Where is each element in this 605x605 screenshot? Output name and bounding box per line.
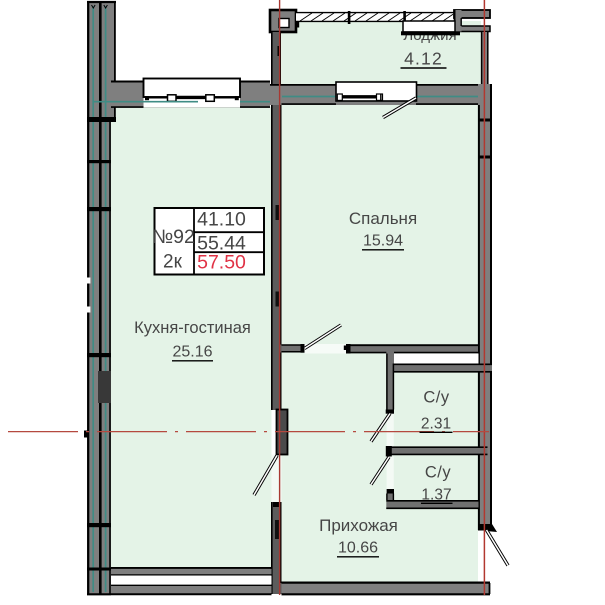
svg-text:Кухня-гостиная: Кухня-гостиная	[134, 319, 251, 337]
svg-text:57.50: 57.50	[197, 251, 246, 273]
svg-text:С/у: С/у	[425, 464, 452, 482]
svg-text:25.16: 25.16	[172, 344, 212, 361]
svg-text:2.31: 2.31	[421, 415, 451, 432]
svg-text:15.94: 15.94	[363, 233, 403, 250]
svg-text:Прихожая: Прихожая	[319, 516, 398, 535]
svg-text:4.12: 4.12	[404, 49, 443, 69]
svg-text:Спальня: Спальня	[349, 209, 417, 228]
svg-text:С/у: С/у	[423, 389, 450, 407]
svg-text:2к: 2к	[163, 252, 183, 273]
svg-text:№92: №92	[152, 226, 195, 248]
svg-text:41.10: 41.10	[197, 209, 246, 231]
svg-text:10.66: 10.66	[338, 540, 378, 557]
svg-text:1.37: 1.37	[421, 487, 451, 504]
